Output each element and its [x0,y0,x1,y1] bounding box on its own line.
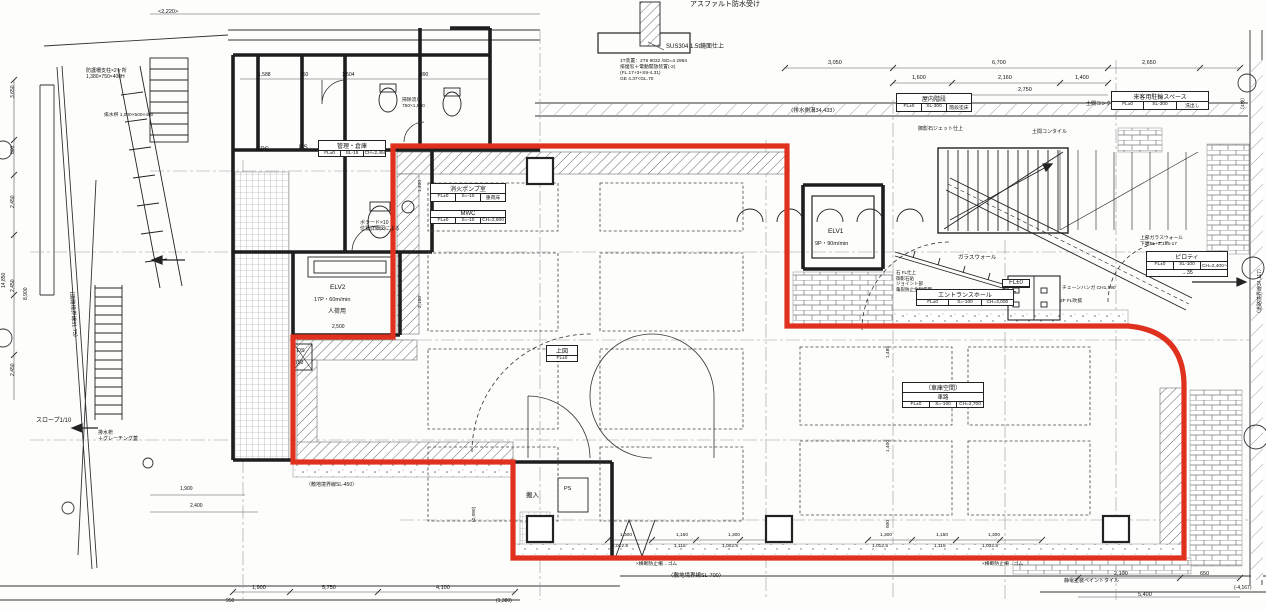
indoor-stair-tag-spec-row: FL±0SL-300階段塗床 [897,104,971,111]
label-elv2-use: 人荷用 [328,309,346,317]
label-eps: EPS [256,146,269,154]
dim-500-int: 500 [886,520,892,528]
labels-layer: アスファルト防水受けSUS304 1.5t鏡面仕上1T装置：2T6 9032 /… [0,0,1266,610]
dim-3650: 3,650 [10,85,16,98]
dim-b1-1300a: 1,300 [620,533,632,539]
note-asphalt-waterproof: アスファルト防水受け [690,1,760,10]
dim-1485-int: 1,485 [886,346,892,358]
piloti-tag: ピロティFL±0SL-100CH=2,400〜→35 [1146,251,1228,277]
dim-2500: 2,500 [332,324,345,330]
note-paint-tile: 静電塗装ペイントタイル [1064,578,1119,584]
visitor-bicycle-tag-cell-1: SL-300 [1144,102,1176,109]
dim-8900: 8,900 [23,287,29,300]
indoor-stair-tag-cell-2: 階段塗床 [947,104,971,111]
garage-space-tag-subtitle: 車路 [903,393,983,402]
dim-b2-10125: 1,012.5 [872,544,888,550]
dim-800: 800 [10,146,16,154]
indoor-stair-tag-cell-0: FL±0 [897,104,922,111]
label-ps-lower: PS [564,486,571,493]
piloti-tag-extra: →35 [1147,269,1227,276]
dim-3050: 3,050 [828,60,842,67]
fl-zero-tag-title: FL±0 [1003,280,1029,287]
label-elv2: ELV2 [330,284,345,292]
dim-1400-top: 1,400 [1075,75,1089,82]
dim-5750: 5,750 [322,585,336,592]
dim-b2-1115: 1,115 [934,544,946,550]
dim-950: 950 [226,598,234,604]
dim-1400-int2: 1,400 [886,440,892,452]
mwc-tag-cell-1: S=-10 [456,218,481,223]
dim-1400-int: 1,400 [418,180,424,192]
dim-6700: 6,700 [992,60,1006,67]
label-site-boundary-450: 〈敷地境界線SL-450〉 [306,482,357,488]
indoor-stair-tag-cell-1: SL-300 [922,104,947,111]
entrance-hall-tag-title: エントランスホール [917,290,1013,300]
dim-650: 650 [1200,571,1209,578]
piloti-tag-cell-1: SL-100 [1174,262,1201,269]
garage-space-tag-title: （車庫空間） [903,383,983,393]
label-ps-upper: PS [299,144,308,152]
kanri-souko-tag-cell-0: FL±0 [319,151,341,156]
jouzu-fl-tag-title: 上図 [547,346,577,356]
note-barrier-2: ×横断防止柵→ゴム [982,562,1023,568]
label-hannyu: 搬入 [526,492,539,500]
dim-2650: 2,650 [1142,60,1156,67]
dim-b2-1150: 1,150 [936,533,948,539]
indoor-stair-tag: 屋内階段FL±0SL-300階段塗床 [896,93,972,112]
mwc-tag-cell-2: CH=2,600 [481,218,505,223]
note-drain-basin-size: 排水桝 1,000×500×450 [104,113,153,119]
garage-space-tag-spec-row: FL±0S=-100CH=2,700 [903,402,983,407]
dim-2750: 2,750 [1018,87,1032,94]
note-souji-sink: 掃除流し 750×1,500 [402,98,425,110]
floor-plan-canvas: アスファルト防水受けSUS304 1.5t鏡面仕上1T装置：2T6 9032 /… [0,0,1266,610]
fl-zero-tag: FL±0 [1002,279,1030,288]
visitor-bicycle-tag: 来客用駐輪スペースFL±0SL-300洗出し [1111,91,1209,110]
dim-2450b: 2,450 [10,279,16,292]
jouzu-fl-tag-cell-0: FL±0 [547,356,577,361]
label-elv1: ELV1 [828,228,843,236]
jouzu-fl-tag-spec-row: FL±0 [547,356,577,361]
dim-b1-1150: 1,150 [676,533,688,539]
dim-750-ds: 750 [295,360,303,366]
jouzu-fl-tag: 上図FL±0 [546,345,578,362]
pump-room-tag-title: 消火ポンプ室 [431,184,505,194]
entrance-hall-tag-cell-2: CH=3,000 [982,300,1013,305]
dim-4mai: （4枚） [1241,95,1247,112]
dim-2220: <2,220> [158,9,178,16]
piloti-tag-title: ピロティ [1147,252,1227,262]
dim-2150-int: 2,150 [418,296,424,308]
note-doma-tile-2: 土間コンタイル [1032,129,1067,135]
dim-b2-10025: 1,002.5 [982,544,998,550]
visitor-bicycle-tag-cell-0: FL±0 [1112,102,1144,109]
note-sus304: SUS304 1.5t鏡面仕上 [666,44,724,52]
kanri-souko-tag-cell-2: CH=2,450 [364,151,385,156]
note-chain-hanger: チェーンハンガ CH1,590 [1062,286,1116,292]
garage-space-tag-cell-1: S=-100 [930,402,957,407]
note-2f-void: 2F FL吹抜 [1060,299,1082,305]
entrance-hall-tag-cell-0: FL±0 [917,300,949,305]
dim-1588: 1,588 [258,72,271,78]
label-elv2-spec: 17P・60m/min [314,297,350,304]
indoor-stair-tag-title: 屋内階段 [897,94,971,104]
dim-1900-l: 1,900 [180,486,193,492]
dim-b1-1300b: 1,300 [728,533,740,539]
visitor-bicycle-tag-cell-2: 洗出し [1177,102,1208,109]
visitor-bicycle-tag-title: 来客用駐輪スペース [1112,92,1208,102]
dim-1380: (1,380) [496,598,512,604]
dim-2090: (2,090) [472,507,478,522]
dim-1504: 1,504 [342,72,355,78]
dim-14850: 14,850 [1,273,7,288]
note-grating: 排水枡 ＋グレーチング蓋 [98,430,138,443]
dim-2450a: 2,450 [10,195,16,208]
pump-room-tag: 消火ポンプ室FL±0S=-10重荷床 [430,183,506,202]
label-road-boundary-right: 〈道路境界線34,117〉 [1257,266,1263,316]
mwc-tag-title: MWC [431,211,505,218]
dim-b2-1300a: 1,300 [880,533,892,539]
dim-b1-1115: 1,115 [674,544,686,550]
dim-b1-10125: 1,012.5 [612,544,628,550]
dim-990: 990 [420,72,428,78]
pump-room-tag-cell-0: FL±0 [431,194,456,201]
label-glass-wall: ガラスウォール [958,255,996,262]
mwc-tag-spec-row: FL±0S=-10CH=2,600 [431,218,505,223]
entrance-hall-tag-cell-1: S=-100 [949,300,981,305]
pump-room-tag-cell-1: S=-10 [456,194,481,201]
label-drain-ditch: 〈排水側溝34,433〉 [788,108,838,115]
piloti-tag-spec-row: FL±0SL-100CH=2,400〜 [1147,262,1227,269]
label-ds: DS [297,348,305,355]
kanri-souko-tag-spec-row: FL±0SL-15CH=2,450 [319,151,385,156]
dim-2450c: 2,450 [10,363,16,376]
kanri-souko-tag: 管理・倉庫FL±0SL-15CH=2,450 [318,140,386,157]
pump-room-tag-spec-row: FL±0S=-10重荷床 [431,194,505,201]
pump-room-tag-cell-2: 重荷床 [481,194,505,201]
mwc-tag-cell-0: FL±0 [431,218,456,223]
visitor-bicycle-tag-spec-row: FL±0SL-300洗出し [1112,102,1208,109]
dim-1600: 1,600 [912,75,926,82]
label-road-boundary-left: （道路境界線31.75） [67,288,78,341]
dim-5400: 5,400 [1138,592,1152,599]
mwc-tag: MWCFL±0S=-10CH=2,600 [430,210,506,224]
dim-b1-10025: 1,002.5 [722,544,738,550]
dim-2160: 2,160 [998,75,1012,82]
dim-neg4167: (-4,167) [1234,585,1252,591]
note-barrier-1: ×横断防止柵→ゴム [636,562,677,568]
label-site-boundary-700: 〈敷地境界線SL-700〉 [668,573,724,580]
piloti-tag-cell-0: FL±0 [1147,262,1174,269]
note-bollard: ボラード×10 位置詳細図による [360,220,400,233]
dim-b2-1300b: 1,300 [988,533,1000,539]
label-elv1-spec: 9P・90m/min [815,241,848,248]
dim-2100: 2,100 [1114,571,1128,578]
note-equipment-spec: 1T装置：2T6 9032 /SD=4 2984 排煙窓＋電動開放装置(-2) … [620,59,687,83]
entrance-hall-tag-spec-row: FL±0S=-100CH=3,000 [917,300,1013,305]
kanri-souko-tag-title: 管理・倉庫 [319,141,385,151]
entrance-hall-tag: エントランスホールFL±0S=-100CH=3,000 [916,289,1014,306]
garage-space-tag-cell-2: CH=2,700 [957,402,983,407]
dim-750: 750 [300,72,308,78]
dim-4100: 4,100 [436,585,450,592]
note-fence-post: 防護柵支柱×2ヶ所 1,380×750×400H [86,68,127,81]
dim-2400-l: 2,400 [190,503,203,509]
garage-space-tag-cell-0: FL±0 [903,402,930,407]
label-slope: スロープ1/10 [36,418,71,426]
note-upper-glass-wall: 上部ガラスウォール 下端FL+2,165-17 [1140,236,1183,248]
piloti-tag-cell-2: CH=2,400〜 [1201,262,1227,269]
dim-1900-b: 1,900 [252,585,266,592]
kanri-souko-tag-cell-1: SL-15 [341,151,363,156]
garage-space-tag: （車庫空間）車路FL±0S=-100CH=2,700 [902,382,984,408]
note-mikage-stone: 御影石ジェット仕上 [918,126,963,132]
